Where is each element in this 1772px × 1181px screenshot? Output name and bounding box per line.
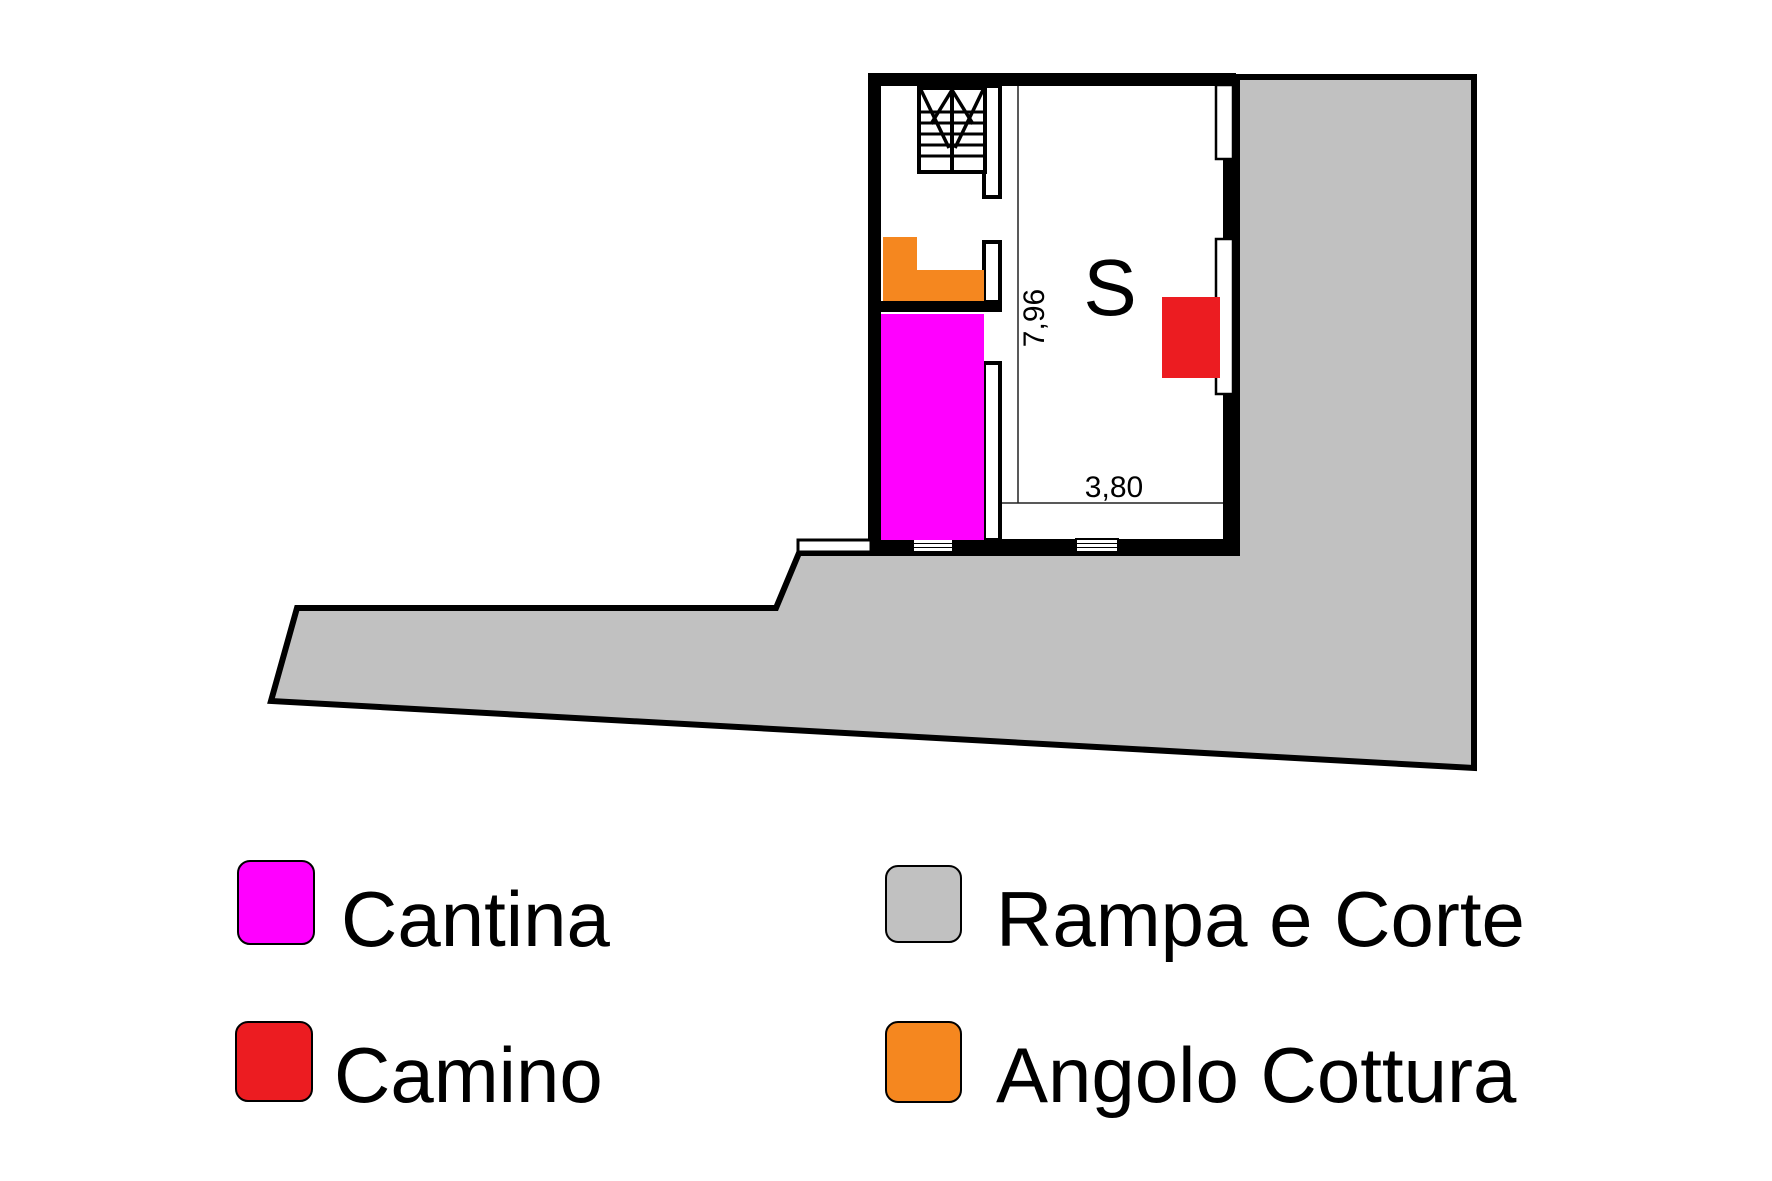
staircase — [919, 88, 985, 172]
dimension-vertical-label: 7,96 — [1018, 289, 1051, 347]
partition-wall-middle — [984, 242, 1000, 302]
legend: Cantina Rampa e Corte Camino Angolo Cott… — [236, 861, 1525, 1119]
legend-item-rampa-e-corte: Rampa e Corte — [886, 866, 1525, 963]
wall-left — [868, 73, 881, 552]
floor-plan-drawing: S 7,96 3,80 Cantina Rampa e Corte Camino… — [0, 0, 1772, 1181]
wall-top — [868, 73, 1236, 86]
legend-swatch-angolo-cottura — [886, 1022, 961, 1102]
legend-swatch-cantina — [238, 861, 314, 944]
right-wall-opening-upper — [1216, 85, 1233, 159]
angolo-cottura-area — [883, 237, 984, 301]
cantina-area — [881, 314, 984, 540]
legend-label-rampa-e-corte: Rampa e Corte — [996, 875, 1525, 963]
legend-label-cantina: Cantina — [341, 875, 610, 963]
legend-swatch-rampa-e-corte — [886, 866, 961, 942]
camino-area — [1162, 297, 1220, 378]
dimension-horizontal-label: 3,80 — [1085, 471, 1143, 504]
legend-item-angolo-cottura: Angolo Cottura — [886, 1022, 1517, 1119]
legend-label-camino: Camino — [334, 1031, 603, 1119]
floor-plan-page: S 7,96 3,80 Cantina Rampa e Corte Camino… — [0, 0, 1772, 1181]
partition-wall-lower — [984, 363, 1000, 540]
legend-swatch-camino — [236, 1022, 312, 1101]
legend-label-angolo-cottura: Angolo Cottura — [996, 1031, 1517, 1119]
bottom-wall-window-left — [913, 539, 953, 552]
bottom-wall-window-right — [1076, 539, 1118, 552]
exterior-step-ledge — [798, 540, 871, 552]
room-label-s: S — [1083, 243, 1136, 332]
legend-item-cantina: Cantina — [238, 861, 610, 963]
partition-wall-horizontal — [879, 301, 1002, 312]
legend-item-camino: Camino — [236, 1022, 603, 1119]
